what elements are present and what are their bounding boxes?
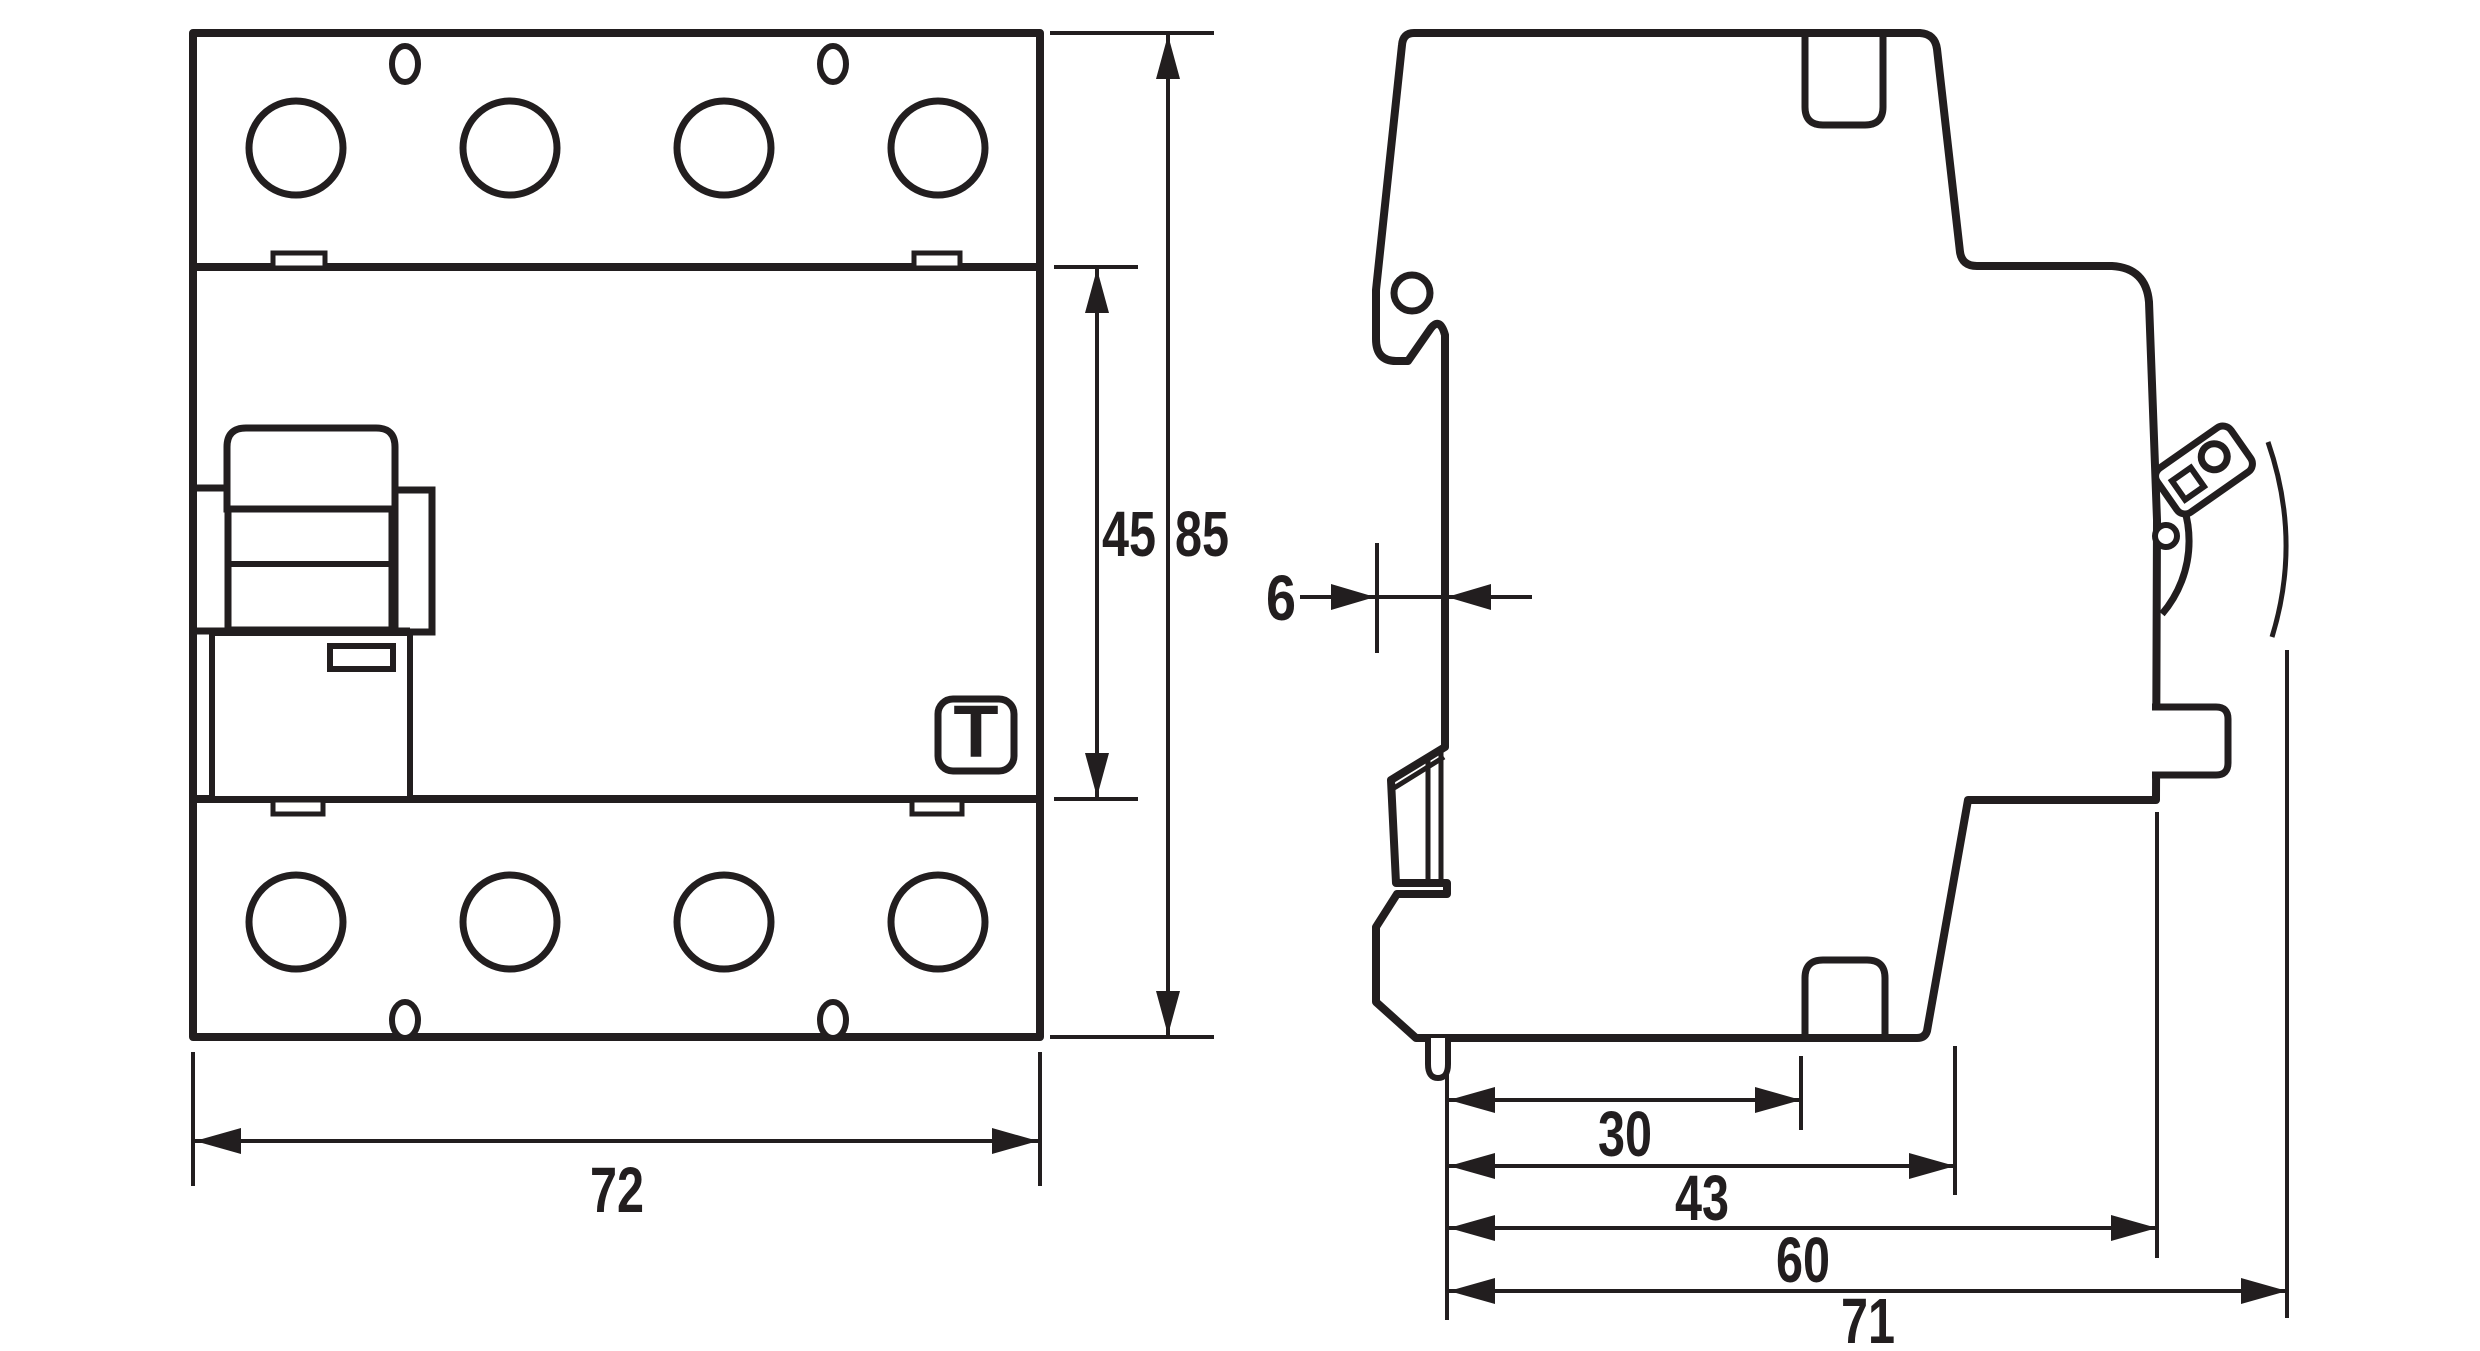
dim-label-71: 71 — [1841, 1285, 1895, 1351]
seam-tab — [273, 800, 323, 814]
toggle-lever — [2152, 422, 2286, 637]
arrowhead — [1156, 35, 1180, 79]
seam-tab — [914, 253, 960, 268]
arrowhead — [1755, 1087, 1801, 1113]
screw-access-hole — [820, 46, 846, 82]
switch-paddle — [227, 428, 395, 509]
arrowhead — [1331, 584, 1375, 610]
arrowhead — [1156, 991, 1180, 1035]
front-view: T — [193, 33, 1040, 1038]
screw-access-hole — [820, 1002, 846, 1038]
lever-travel-arc — [2268, 442, 2286, 637]
claw-screw-hole — [1394, 275, 1430, 311]
arrowhead — [1449, 1153, 1495, 1179]
arrowhead — [1909, 1153, 1955, 1179]
rcd-dimensional-drawing: T 45 85 72 — [0, 0, 2480, 1351]
arrowhead — [2111, 1215, 2157, 1241]
dim-label-6: 6 — [1266, 562, 1296, 634]
arrowhead — [1449, 1087, 1495, 1113]
terminal-hole — [891, 101, 985, 195]
terminal-hole — [249, 875, 343, 969]
terminal-hole — [677, 101, 771, 195]
terminal-hole — [463, 101, 557, 195]
switch-frame-right — [395, 490, 432, 632]
seam-tab — [912, 800, 962, 814]
label-window — [330, 646, 393, 669]
arrowhead — [1449, 1278, 1495, 1304]
dimensional-drawing-page: T 45 85 72 — [0, 0, 2480, 1351]
dim-label-85: 85 — [1175, 498, 1229, 570]
arrowhead — [195, 1128, 241, 1154]
dim-label-43: 43 — [1675, 1162, 1729, 1234]
terminal-hole — [677, 875, 771, 969]
lever-pivot-dot — [2155, 525, 2177, 547]
arrowhead — [1085, 753, 1109, 797]
arrowhead — [1085, 269, 1109, 313]
terminal-hole — [463, 875, 557, 969]
screw-access-hole — [392, 1002, 418, 1038]
t-logo-letter: T — [953, 690, 998, 773]
switch-body — [228, 509, 392, 630]
screw-access-hole — [392, 46, 418, 82]
side-view — [1376, 33, 2286, 1078]
terminal-hole — [249, 101, 343, 195]
dim-label-45: 45 — [1102, 498, 1156, 570]
arrowhead — [1449, 1215, 1495, 1241]
arrowhead — [2241, 1278, 2287, 1304]
test-button-side — [2152, 707, 2228, 775]
switch-assembly — [193, 428, 432, 799]
dim-label-60: 60 — [1776, 1224, 1830, 1296]
terminal-hole — [891, 875, 985, 969]
seam-tab — [273, 253, 325, 268]
dim-label-30: 30 — [1598, 1098, 1652, 1170]
side-view-outline — [1376, 33, 2157, 1038]
dim-label-72: 72 — [590, 1154, 644, 1226]
arrowhead — [992, 1128, 1038, 1154]
